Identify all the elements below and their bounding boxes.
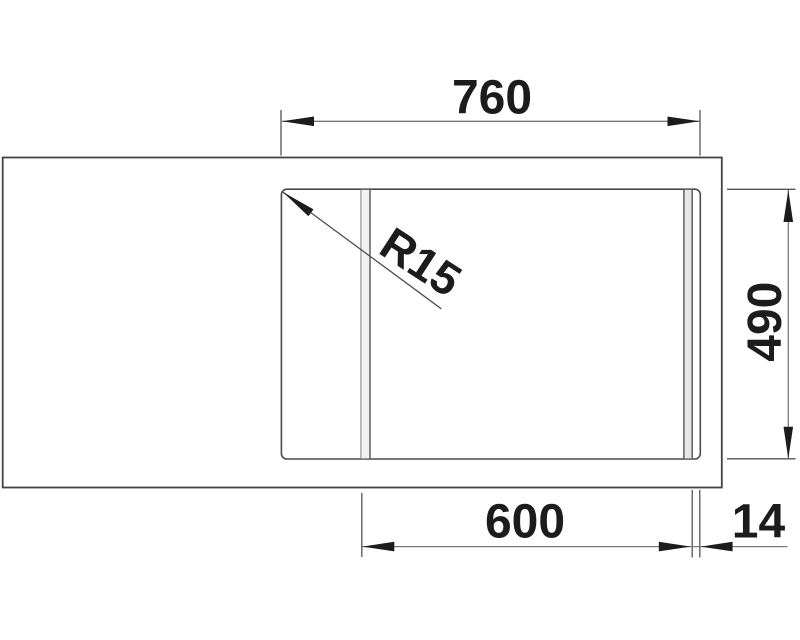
svg-text:490: 490 [739,282,792,362]
svg-text:600: 600 [485,496,565,549]
svg-text:14: 14 [732,496,786,549]
svg-text:760: 760 [452,72,532,125]
